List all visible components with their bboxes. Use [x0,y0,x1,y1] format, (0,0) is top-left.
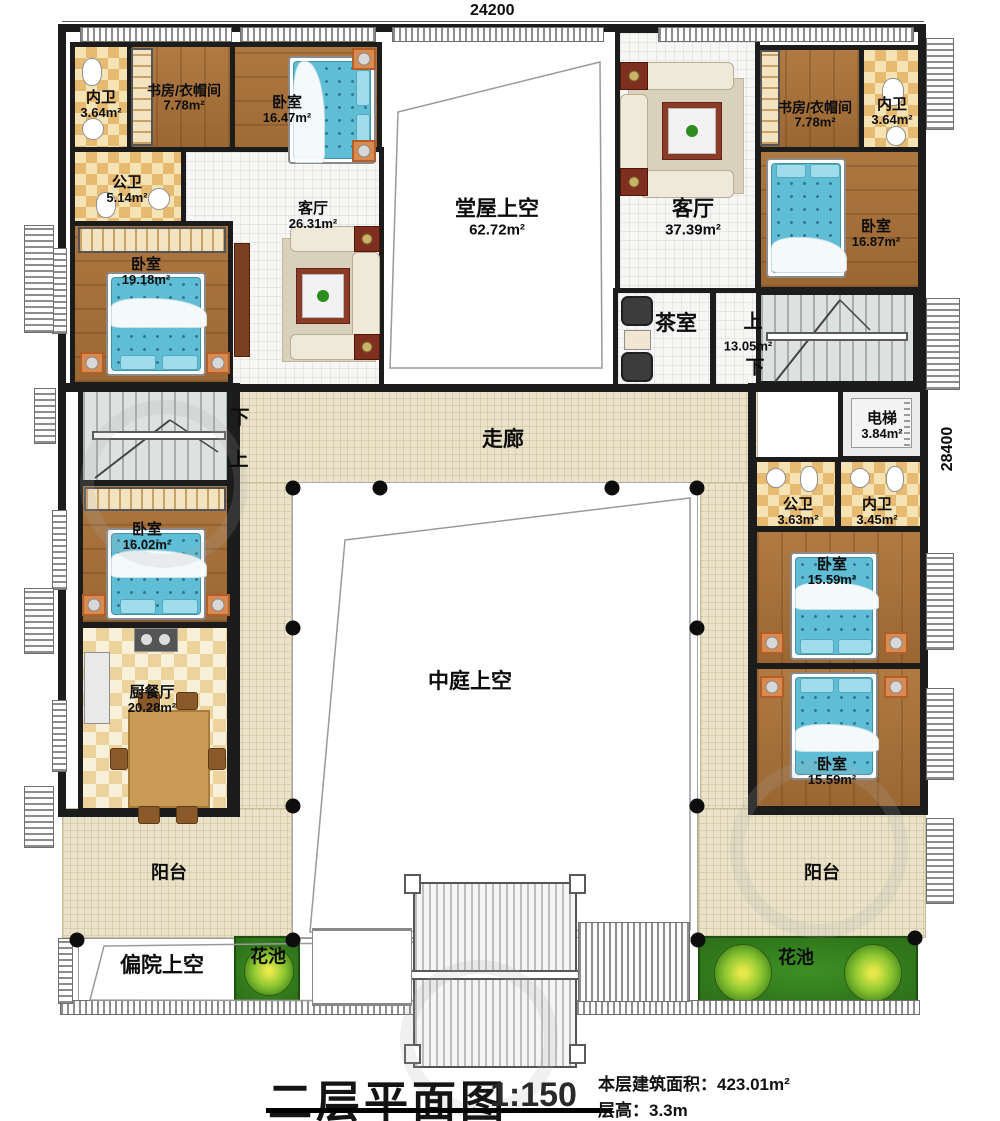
pillow [838,678,872,693]
room-area: 62.72m² [455,221,539,238]
pillow [162,599,198,614]
room-area: 16.47m² [263,111,311,126]
window [240,27,376,42]
window [80,27,232,42]
room-name: 公卫 [106,174,147,191]
room-name: 内卫 [856,496,897,513]
coffee-table [662,102,722,160]
label-balcony-left: 阳台 [151,863,187,884]
label-ne-neiwei: 内卫 3.64m² [871,96,912,128]
plant-box [620,62,648,90]
sink-icon [82,118,104,140]
stair-post [404,1044,421,1064]
toilet-icon [82,58,102,86]
column-dot [70,933,85,948]
room-area: 20.28m² [128,701,176,716]
elevator-door-icon [904,400,910,446]
bed [766,158,846,278]
label-w-gongwei: 公卫 5.14m² [106,174,147,206]
plant-box [354,334,380,360]
floor-height-value: 3.3m [649,1101,688,1120]
room-name: 书房/衣帽间 [147,82,221,98]
label-courtyard: 中庭上空 [428,670,512,694]
column-dot [286,933,301,948]
room-name: 电梯 [861,410,902,427]
stair-up-label: 上 [229,445,248,472]
label-tangwu: 堂屋上空 62.72m² [455,197,539,238]
window [52,510,67,590]
label-kitchen: 厨餐厅 20.28m² [128,684,176,716]
label-w-bed2: 卧室 16.02m² [123,521,171,553]
label-e-bed2: 卧室 15.59m² [808,756,856,788]
column-dot [286,481,301,496]
kitchen-counter [84,652,110,724]
nightstand [760,632,784,654]
column-dot [690,799,705,814]
label-e-gongwei: 公卫 3.63m² [777,496,818,528]
column-dot [690,621,705,636]
room-area: 16.02m² [123,538,171,553]
room-name: 卧室 [122,256,170,273]
chair [208,748,226,770]
chair [176,806,198,824]
room-area: 37.39m² [665,221,721,238]
room-name: 客厅 [665,197,721,221]
chair [110,748,128,770]
pillow [120,355,156,370]
room-name: 厨餐厅 [128,684,176,701]
wardrobe [84,487,226,511]
courtyard-void [292,482,698,938]
room-name: 内卫 [871,96,912,113]
tree-icon [714,944,772,1002]
room-area: 3.64m² [80,106,121,121]
room-name: 卧室 [852,218,900,235]
room-area: 3.45m² [856,513,897,528]
exterior-ledge [926,38,954,130]
floor-height-label: 层高： [598,1101,649,1120]
label-ne-bed: 卧室 16.87m² [852,218,900,250]
room-name: 茶室 [655,312,697,336]
corridor-right-surface [700,482,756,812]
room-area: 7.78m² [778,116,852,131]
room-area: 15.59m² [808,573,856,588]
sink-icon [766,468,786,488]
building-area: 本层建筑面积：423.01m² [598,1070,790,1095]
label-nw-study: 书房/衣帽间 7.78m² [147,82,221,113]
column-dot [373,481,388,496]
dimension-line-top [62,21,924,22]
plant-box [620,168,648,196]
room-area: 15.59m² [808,773,856,788]
label-w-living: 客厅 26.31m² [289,200,337,232]
nightstand [352,140,376,162]
window [392,27,604,42]
label-side-yard: 偏院上空 [120,954,204,978]
entrance-landing-right [578,922,690,1002]
exterior-ledge [24,786,54,848]
label-ne-living: 客厅 37.39m² [665,197,721,238]
stair-post [569,1044,586,1064]
window [52,248,67,334]
pillow [356,70,370,106]
label-flower-right: 花池 [778,948,814,969]
room-area: 26.31m² [289,217,337,232]
stair-post [569,874,586,894]
pillow [120,599,156,614]
stair-rail-left [92,431,226,440]
column-dot [690,481,705,496]
dining-table [128,710,210,808]
label-w-bed: 卧室 19.18m² [122,256,170,288]
room-name: 内卫 [80,89,121,106]
sofa [290,334,364,360]
building-area-value: 423.01m² [717,1075,790,1094]
label-nw-neiwei: 内卫 3.64m² [80,89,121,121]
nightstand [884,676,908,698]
label-elevator: 电梯 3.84m² [861,410,902,442]
room-name: 堂屋上空 [455,197,539,221]
nightstand [352,48,376,70]
sink-icon [886,126,906,146]
room-area: 3.84m² [861,427,902,442]
column-dot [286,621,301,636]
floor-plan: 内卫 3.64m² 书房/衣帽间 7.78m² 卧室 16.47m² 堂屋上空 … [0,0,1000,1121]
stair-rail-right [766,332,908,341]
tv-cabinet [234,243,250,357]
label-ne-study: 书房/衣帽间 7.78m² [778,99,852,130]
exterior-ledge [926,553,954,650]
stove-icon [134,628,178,652]
tea-table [624,330,651,350]
room-name: 卧室 [808,756,856,773]
dimension-right: 28400 [939,419,957,479]
nightstand [884,632,908,654]
window [658,27,914,42]
sofa [640,170,734,198]
bottom-left-railing [58,938,73,1004]
exterior-ledge [34,388,56,444]
column-dot [286,799,301,814]
title-underline [266,1108,612,1113]
chair [176,692,198,710]
nightstand [82,594,106,616]
nightstand [206,594,230,616]
wardrobe [760,50,780,146]
entrance-stair-rail [405,970,585,980]
sink-icon [850,468,870,488]
toilet-icon [800,466,818,492]
column-dot [605,481,620,496]
nightstand [80,352,104,374]
flower-bed-right [698,936,918,1006]
room-area: 19.18m² [122,273,170,288]
sofa [352,252,380,340]
building-area-label: 本层建筑面积： [598,1075,717,1094]
room-name: 书房/衣帽间 [778,99,852,115]
label-nw-bed: 卧室 16.47m² [263,94,311,126]
plant-box [354,226,380,252]
pillow [838,639,872,654]
nightstand [206,352,230,374]
entrance-landing-left [312,928,412,1006]
exterior-ledge [926,818,954,904]
label-e-neiwei: 内卫 3.45m² [856,496,897,528]
pillow [776,164,806,178]
room-name: 卧室 [808,556,856,573]
pillow [810,164,840,178]
nightstand [760,676,784,698]
coffee-table [296,268,350,324]
pillow [162,355,198,370]
corridor-left-surface [234,482,292,812]
label-corridor: 走廊 [482,428,524,452]
column-dot [691,933,706,948]
pillow [800,639,834,654]
exterior-ledge [926,688,954,780]
floor-height: 层高：3.3m [598,1096,688,1121]
room-area: 7.78m² [147,99,221,114]
stair-down-label: 下 [745,353,764,380]
room-name: 客厅 [289,200,337,217]
room-area: 3.64m² [871,113,912,128]
tree-icon [844,944,902,1002]
exterior-ledge [926,298,960,390]
label-balcony-right: 阳台 [804,863,840,884]
toilet-icon [886,466,904,492]
tea-chair [621,296,653,326]
sink-icon [148,188,170,210]
chair [138,806,160,824]
room-name: 卧室 [123,521,171,538]
label-e-bed1: 卧室 15.59m² [808,556,856,588]
stair-down-label: 下 [230,403,249,430]
sofa [640,62,734,90]
stair-up-label: 上 [743,307,762,334]
room-area: 16.87m² [852,235,900,250]
window [52,700,67,772]
exterior-ledge [24,225,54,333]
label-tea: 茶室 [655,312,697,336]
exterior-ledge [24,588,54,654]
label-flower-left: 花池 [250,947,286,968]
tea-chair [621,352,653,382]
wardrobe [78,227,226,253]
sofa [620,94,648,178]
dimension-top: 24200 [470,2,515,20]
stair-post [404,874,421,894]
room-area: 5.14m² [106,191,147,206]
room-name: 卧室 [263,94,311,111]
room-name: 公卫 [777,496,818,513]
room-area: 3.63m² [777,513,818,528]
pillow [800,678,834,693]
column-dot [908,931,923,946]
